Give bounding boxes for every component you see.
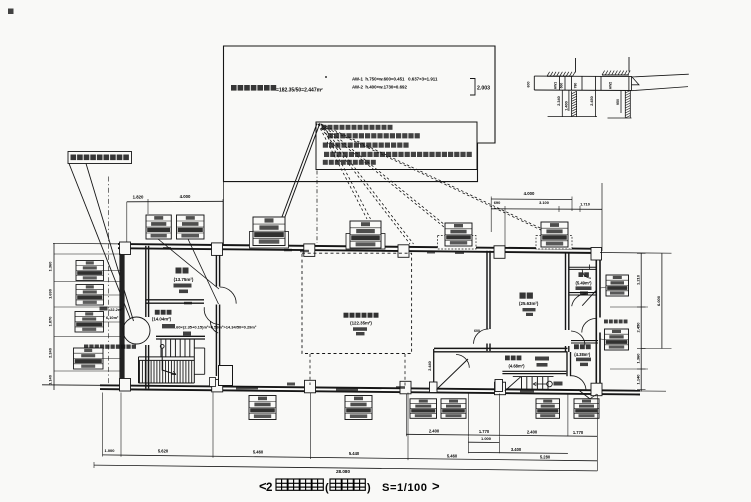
svg-text:AW1: AW1 [554, 82, 558, 89]
svg-text:.60×(2.35+0.15)m²=0.59m²>14.34: .60×(2.35+0.15)m²=0.59m²>14.34/50=0.29m² [175, 324, 257, 329]
svg-text:4.000: 4.000 [524, 191, 535, 196]
svg-text:2.340: 2.340 [557, 96, 561, 106]
svg-text:1.140: 1.140 [635, 374, 640, 385]
svg-text:1.820: 1.820 [133, 194, 144, 199]
svg-text:28.080: 28.080 [336, 469, 350, 474]
svg-text:2.450: 2.450 [590, 96, 594, 106]
svg-text:6.000: 6.000 [656, 295, 661, 306]
svg-text:2.440: 2.440 [428, 361, 432, 371]
svg-text:(13.75m²): (13.75m²) [174, 277, 194, 282]
svg-text:2.400: 2.400 [429, 428, 440, 433]
svg-text:(122.35m²): (122.35m²) [350, 321, 372, 326]
svg-text:5.280: 5.280 [540, 454, 551, 459]
svg-text:5.460: 5.460 [447, 453, 458, 458]
svg-text:=182.35/50=2.447m²: =182.35/50=2.447m² [276, 88, 323, 94]
svg-text:600: 600 [527, 82, 531, 88]
svg-text:3.400: 3.400 [511, 447, 522, 452]
svg-text:AW-1 h.750×w.600=0.451 0.63: AW-1 h.750×w.600=0.451 0.637×3=1.911 [352, 77, 438, 82]
svg-text:>: > [432, 479, 440, 494]
svg-text:780: 780 [574, 83, 578, 89]
svg-text:(: ( [325, 482, 329, 494]
svg-text:(4.38m²): (4.38m²) [574, 352, 591, 357]
svg-text:950: 950 [616, 99, 620, 105]
svg-text:1.770: 1.770 [573, 430, 584, 435]
svg-text:(5.49m²): (5.49m²) [575, 280, 592, 285]
svg-text:2.240: 2.240 [47, 348, 52, 358]
svg-text:5.460: 5.460 [253, 450, 264, 455]
svg-text:1.400: 1.400 [564, 101, 568, 111]
svg-text:2: 2 [266, 482, 272, 494]
svg-text:2.450: 2.450 [635, 322, 640, 333]
svg-text:(25.63m²): (25.63m²) [519, 301, 539, 306]
svg-text:1.870: 1.870 [47, 317, 52, 327]
svg-text:1.360: 1.360 [635, 353, 640, 364]
svg-text:1.140: 1.140 [47, 375, 52, 385]
svg-text:1.710: 1.710 [580, 202, 590, 207]
svg-text:2.003: 2.003 [477, 86, 490, 92]
svg-text:(4.68m²): (4.68m²) [508, 364, 525, 369]
svg-text:2.400: 2.400 [527, 429, 538, 434]
svg-text:5.620: 5.620 [158, 449, 169, 454]
svg-text:690: 690 [494, 200, 501, 205]
svg-text:1.000: 1.000 [104, 448, 115, 453]
svg-text:4.000: 4.000 [180, 194, 191, 199]
svg-text:AW-2 h.400×w.1730=0.692: AW-2 h.400×w.1730=0.692 [352, 85, 407, 90]
svg-text:1.360: 1.360 [47, 262, 52, 272]
svg-text:S=1/100: S=1/100 [382, 482, 428, 494]
svg-text:5.440: 5.440 [349, 451, 360, 456]
svg-text:1.770: 1.770 [479, 429, 490, 434]
svg-text:3.100: 3.100 [539, 200, 549, 205]
svg-text:1.690: 1.690 [47, 289, 52, 299]
svg-text:1.210: 1.210 [635, 274, 640, 285]
svg-text:AW2: AW2 [609, 82, 613, 89]
svg-text:(14.04m²): (14.04m²) [152, 317, 172, 322]
svg-text:): ) [367, 482, 371, 494]
svg-text:=22.2m²: =22.2m² [108, 307, 123, 312]
svg-text:6.10m²: 6.10m² [106, 315, 119, 320]
svg-text:600: 600 [560, 83, 564, 89]
svg-text:1.000: 1.000 [481, 436, 492, 441]
